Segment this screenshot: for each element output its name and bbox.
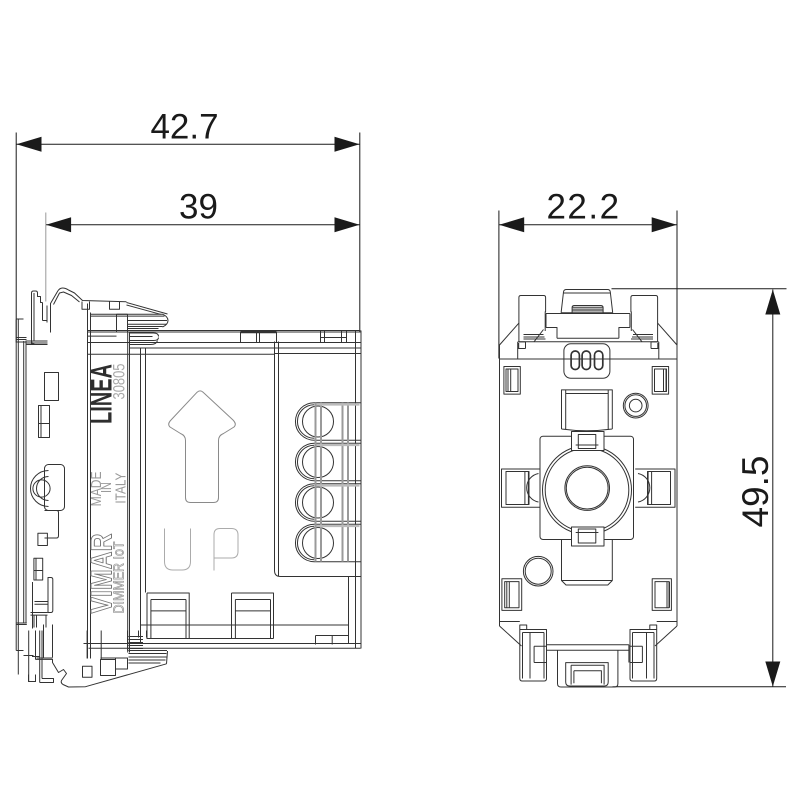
svg-text:DIMMER IoT: DIMMER IoT [111,542,128,614]
svg-text:49.5: 49.5 [735,455,776,527]
svg-text:30805: 30805 [110,364,129,400]
svg-text:39: 39 [179,188,218,227]
svg-text:ITALY: ITALY [112,473,129,504]
svg-text:22.2: 22.2 [546,188,620,227]
svg-text:42.7: 42.7 [150,108,218,147]
